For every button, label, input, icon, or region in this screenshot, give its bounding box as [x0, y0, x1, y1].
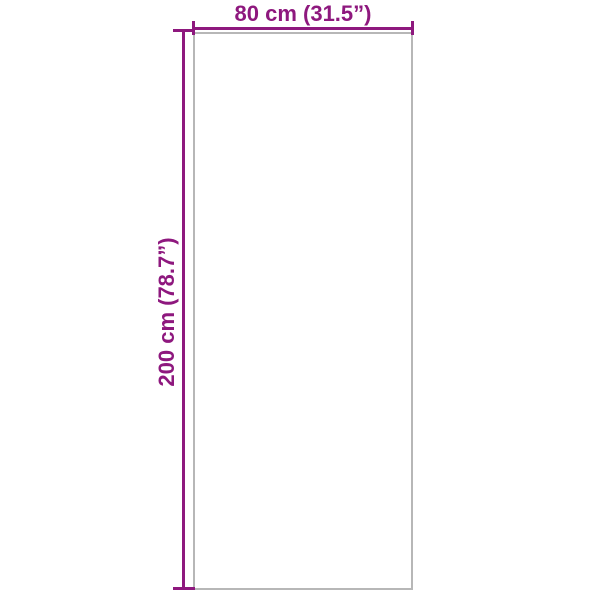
height-dimension-bottom-tick: [173, 587, 195, 590]
height-dimension-line: [182, 30, 185, 590]
width-dimension-line: [193, 27, 414, 30]
height-dimension-label: 200 cm (78.7”): [156, 237, 178, 386]
product-outline: [193, 32, 413, 590]
product-dimension-diagram: 80 cm (31.5”) 200 cm (78.7”): [0, 0, 600, 600]
width-dimension-label: 80 cm (31.5”): [235, 3, 372, 25]
width-dimension-left-tick: [192, 21, 195, 35]
height-dimension-top-tick: [173, 29, 195, 32]
width-dimension-right-tick: [411, 21, 414, 35]
